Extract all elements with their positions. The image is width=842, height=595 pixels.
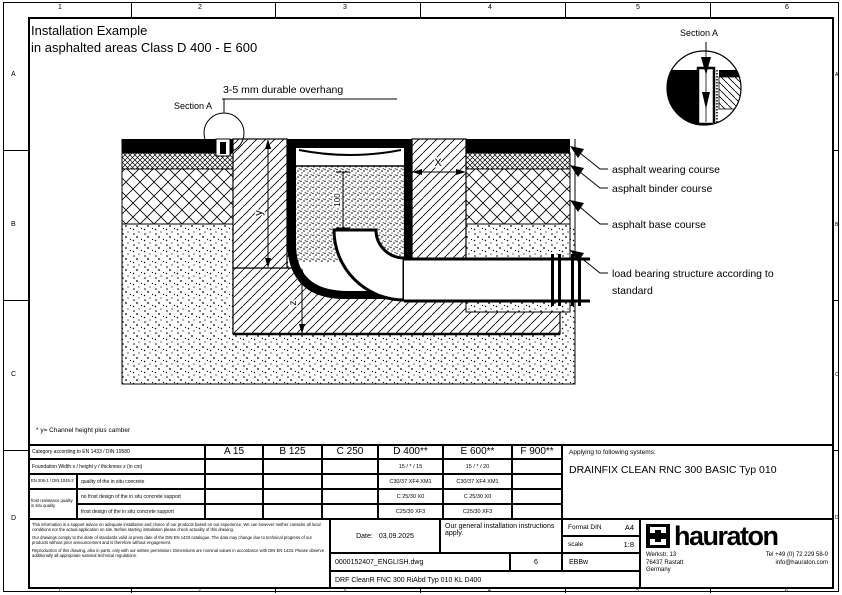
callout-wearing: asphalt wearing course (612, 164, 720, 176)
table-category-label: Category according to EN 1433 / DIN 1958… (28, 444, 205, 459)
zone-col-2b: 2 (198, 589, 201, 594)
empty-cell (322, 504, 378, 519)
value-quality-d400: C30/37 XF4 XM1 (378, 474, 443, 489)
empty-cell (263, 489, 322, 504)
empty-cell (263, 459, 322, 474)
zone-col-2: 2 (198, 4, 202, 11)
empty-cell (322, 459, 378, 474)
col-header-d400: D 400** (378, 444, 443, 459)
instructions-cell: Our general installation instructions ap… (440, 519, 562, 553)
disclaimer-paragraph-2: Our drawings comply to the state of stan… (32, 535, 326, 545)
company-logo: hauraton (646, 523, 828, 549)
zone-col-1b: 1 (58, 589, 61, 594)
grid-tick (3, 150, 28, 151)
sheet-number-cell: 6 (510, 553, 562, 571)
row-label-quality: quality of the in situ concrete (77, 474, 205, 489)
scale-value: 1:8 (624, 540, 634, 549)
empty-cell (205, 489, 263, 504)
zone-col-3b: 3 (343, 589, 346, 594)
value-frost-e600: C25/30 XF3 (443, 504, 512, 519)
file-name-cell: 0000152407_ENGLISH.dwg (330, 553, 510, 571)
date-cell: Date: 03.09.2025 (330, 519, 440, 553)
grid-tick (710, 589, 711, 593)
table-foundation-label: Foundation Width x / height y / thicknes… (28, 459, 205, 474)
date-value: 03.09.2025 (379, 533, 414, 540)
disclaimer-paragraph-3: Reproduction of this drawing, also in pa… (32, 548, 326, 558)
col-header-c250: C 250 (322, 444, 378, 459)
zone-row-b: B (11, 221, 16, 228)
title-line-1: Installation Example (31, 22, 257, 39)
grid-tick (131, 589, 132, 593)
col-header-a15: A 15 (205, 444, 263, 459)
systems-block: Applying to following systems: DRAINFIX … (562, 444, 834, 519)
empty-cell (512, 459, 562, 474)
callout-base: asphalt base course (612, 219, 706, 231)
col-header-b125: B 125 (263, 444, 322, 459)
svg-text:z: z (288, 301, 299, 306)
callout-binder: asphalt binder course (612, 183, 713, 195)
value-frost-d400: C25/30 XF3 (378, 504, 443, 519)
grid-tick (3, 300, 28, 301)
company-city: 76437 Rastatt (646, 560, 683, 568)
grid-tick (565, 589, 566, 593)
concrete-group-top: EN 206-1 / DIN 1045-2 (28, 474, 77, 489)
scale-label: scale (568, 541, 583, 548)
empty-cell (205, 474, 263, 489)
layer-callouts: asphalt wearing course asphalt binder co… (570, 146, 774, 297)
company-contact: Werkstr. 13 76437 Rastatt Germany Tel +4… (646, 552, 828, 575)
grid-tick (710, 2, 711, 17)
svg-text:100: 100 (333, 193, 342, 207)
title-line-2: in asphalted areas Class D 400 - E 600 (31, 39, 257, 56)
scale-cell: scale 1:8 (562, 536, 640, 553)
empty-cell (322, 474, 378, 489)
zone-col-5: 5 (636, 4, 640, 11)
zone-row-a-r: A (835, 73, 838, 78)
drawing-code-cell: DRF CleanR FNC 300 RiAbd Typ 010 KL D400 (330, 571, 640, 589)
callout-load-2: standard (612, 285, 653, 297)
grid-tick (275, 589, 276, 593)
col-header-e600: E 600** (443, 444, 512, 459)
grid-tick (131, 2, 132, 17)
systems-value: DRAINFIX CLEAN RNC 300 BASIC Typ 010 (569, 464, 777, 476)
zone-col-5b: 5 (636, 589, 639, 594)
drawing-sheet: y z X 100 Section (0, 0, 842, 595)
company-block: hauraton Werkstr. 13 76437 Rastatt Germa… (640, 519, 834, 589)
grid-tick (834, 150, 839, 151)
date-label: Date: (356, 533, 373, 540)
grid-tick (275, 2, 276, 17)
empty-cell (205, 504, 263, 519)
empty-cell (512, 474, 562, 489)
zone-row-b-r: B (835, 223, 838, 228)
grid-tick (3, 450, 28, 451)
detail-label: Section A (680, 28, 718, 38)
grid-tick (565, 2, 566, 17)
grid-tick (834, 450, 839, 451)
value-no-frost-e600: C 25/30 X0 (443, 489, 512, 504)
hauraton-logo-icon (646, 524, 670, 548)
grid-tick (420, 2, 421, 17)
format-value: A4 (625, 523, 634, 532)
zone-row-c: C (11, 371, 16, 378)
disclaimer-block: This information is a support advice on … (28, 519, 330, 589)
company-email[interactable]: info@hauraton.com (766, 560, 828, 568)
row-label-frost: frost design of the in situ concrete sup… (77, 504, 205, 519)
empty-cell (263, 504, 322, 519)
format-cell: Format DIN A4 (562, 519, 640, 536)
zone-row-a: A (11, 71, 16, 78)
svg-text:y: y (253, 210, 265, 216)
company-address: Werkstr. 13 76437 Rastatt Germany (646, 552, 683, 575)
row-label-no-frost: no frost design of the in situ concrete … (77, 489, 205, 504)
zone-col-3: 3 (343, 4, 347, 11)
format-label: Format DIN (568, 524, 602, 531)
company-country: Germany (646, 567, 683, 575)
zone-col-1: 1 (58, 4, 62, 11)
grid-tick (834, 300, 839, 301)
foundation-e600: 15 / * / 20 (443, 459, 512, 474)
company-phone: Tel +49 (0) 72 229 58-0 (766, 552, 828, 560)
overhang-label: 3-5 mm durable overhang (223, 84, 343, 96)
footnote: * y= Channel height plus camber (36, 427, 130, 434)
empty-cell (512, 504, 562, 519)
empty-cell (263, 474, 322, 489)
callout-load-1: load bearing structure according to (612, 268, 774, 280)
section-a-label: Section A (174, 101, 212, 111)
disclaimer-paragraph-1: This information is a support advice on … (32, 522, 326, 532)
grid-tick (420, 589, 421, 593)
concrete-group-bottom: frost resistance quality in situ quality (28, 489, 77, 519)
col-header-f900: F 900** (512, 444, 562, 459)
hauraton-wordmark: hauraton (674, 523, 778, 549)
svg-text:X: X (434, 157, 442, 169)
section-a-detail: Section A (660, 28, 747, 128)
zone-col-4: 4 (488, 4, 492, 11)
page-title: Installation Example in asphalted areas … (31, 22, 257, 56)
value-quality-e600: C30/37 XF4 XM1 (443, 474, 512, 489)
company-phone-email: Tel +49 (0) 72 229 58-0 info@hauraton.co… (766, 552, 828, 575)
zone-row-d-r: D (835, 516, 839, 521)
zone-col-6: 6 (785, 4, 789, 11)
empty-cell (512, 489, 562, 504)
company-street: Werkstr. 13 (646, 552, 683, 560)
zone-row-d: D (11, 515, 16, 522)
zone-col-4b: 4 (488, 589, 491, 594)
zone-row-c-r: C (835, 373, 839, 378)
foundation-d400: 15 / * / 15 (378, 459, 443, 474)
zone-col-6b: 6 (785, 589, 788, 594)
value-no-frost-d400: C 25/30 X0 (378, 489, 443, 504)
empty-cell (205, 459, 263, 474)
empty-cell (322, 489, 378, 504)
systems-label: Applying to following systems: (569, 449, 656, 456)
code-cell: EBBw (562, 553, 640, 571)
